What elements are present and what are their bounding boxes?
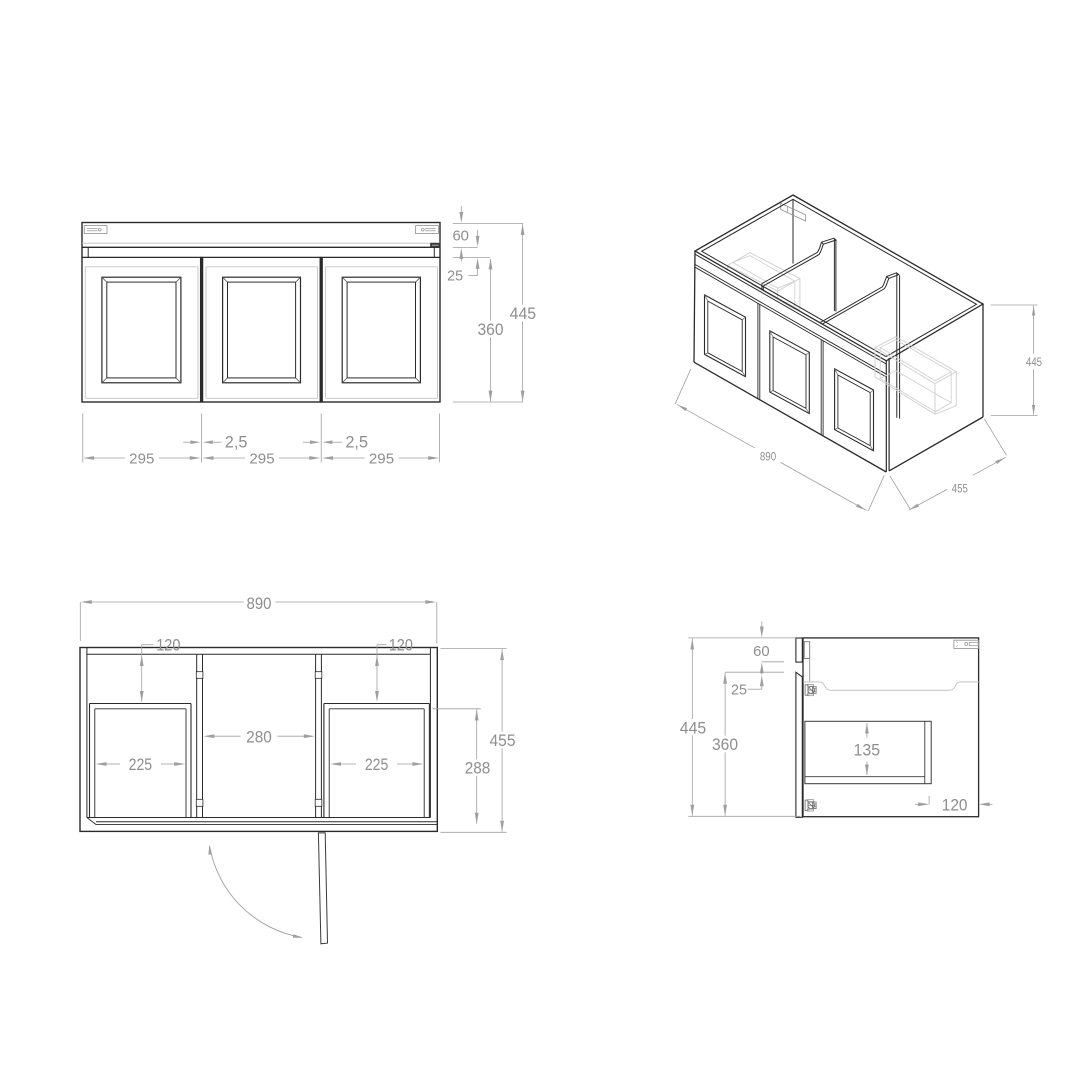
svg-text:225: 225 <box>365 756 389 774</box>
svg-text:225: 225 <box>129 756 153 774</box>
svg-text:60: 60 <box>753 643 770 660</box>
svg-text:445: 445 <box>510 304 537 323</box>
svg-text:295: 295 <box>129 451 154 468</box>
svg-text:120: 120 <box>389 636 413 654</box>
svg-text:890: 890 <box>247 594 272 613</box>
svg-text:2,5: 2,5 <box>225 434 248 452</box>
svg-text:295: 295 <box>369 451 394 468</box>
svg-text:25: 25 <box>731 682 747 699</box>
svg-text:445: 445 <box>1026 355 1042 369</box>
svg-text:120: 120 <box>156 636 180 654</box>
svg-text:120: 120 <box>942 795 968 814</box>
svg-text:60: 60 <box>452 228 469 245</box>
svg-text:445: 445 <box>680 718 707 737</box>
svg-text:135: 135 <box>854 740 881 759</box>
svg-text:890: 890 <box>760 450 776 464</box>
svg-text:2,5: 2,5 <box>345 434 368 452</box>
svg-text:295: 295 <box>249 451 274 468</box>
svg-text:455: 455 <box>490 731 516 750</box>
svg-text:455: 455 <box>952 482 968 496</box>
svg-text:360: 360 <box>712 735 738 754</box>
svg-text:25: 25 <box>447 268 463 285</box>
svg-text:288: 288 <box>465 759 491 778</box>
svg-text:360: 360 <box>478 320 504 339</box>
svg-text:280: 280 <box>246 729 272 747</box>
